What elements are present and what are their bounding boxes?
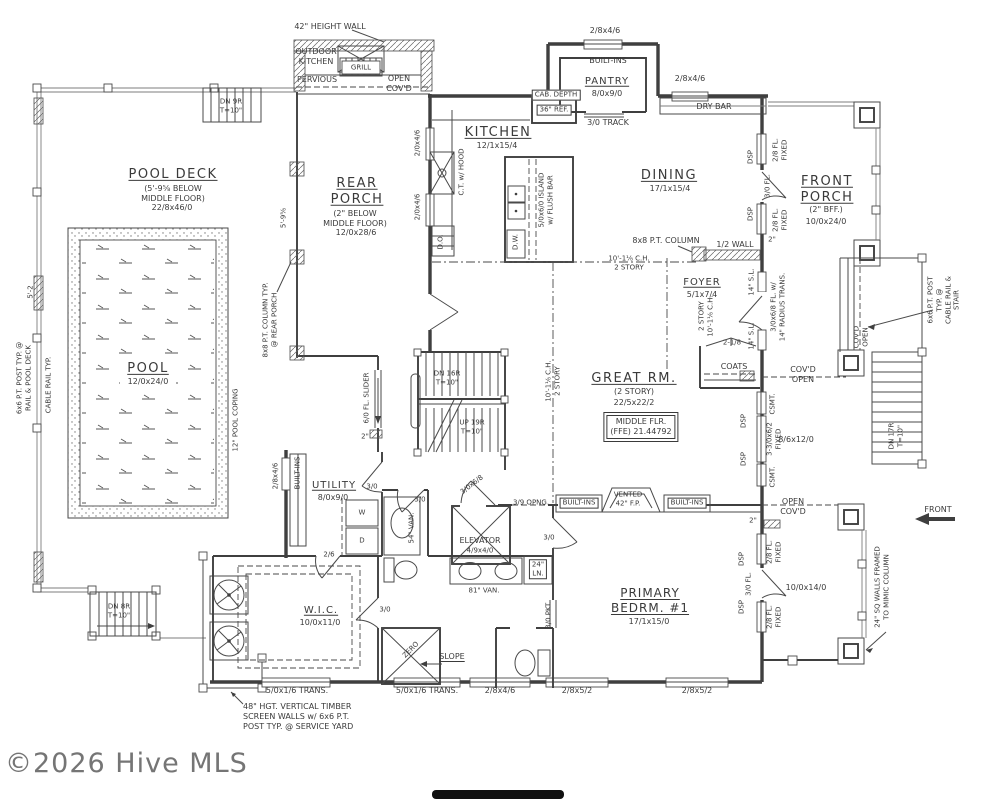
label-dn16r: DN 16R T=10" [434, 369, 461, 387]
label-do: D.O. [437, 234, 446, 249]
label-great-name: GREAT RM. [591, 371, 676, 387]
label-pkt30: 3/0 PKT. [545, 601, 554, 628]
toilet-icon [384, 558, 417, 582]
label-elev-name: ELEVATOR [459, 536, 500, 546]
cooktop-hood-icon [430, 152, 454, 194]
label-covd-open-stair: COV'D OPEN [852, 326, 870, 348]
label-dspd: DSP [740, 452, 749, 466]
label-dim-10014: 10/0x14/0 [786, 583, 827, 593]
label-builtins-l: BUILT-INS [560, 498, 599, 509]
label-dryer: D [359, 537, 364, 546]
label-post-pool: 6x6 P.T. POST TYP. @ RAIL & POOL DECK [15, 342, 33, 414]
label-kitchen-name: KITCHEN [465, 125, 532, 141]
label-slope: SLOPE [439, 652, 464, 662]
label-front-porch-sub: (2" BFF.) [809, 205, 843, 215]
label-pantry-win: 2/8x4/6 [590, 26, 620, 36]
label-door30-prim: 3/0 [543, 534, 554, 543]
label-dspf: DSP [738, 600, 747, 614]
label-csmt-a: CSMT. [769, 393, 778, 414]
label-front-porch-dims: 10/0x24/0 [806, 217, 847, 227]
label-ref36: 36" REF. [537, 105, 572, 116]
label-dry-bar: DRY BAR [696, 102, 731, 112]
label-front-porch-name: FRONT PORCH [801, 174, 854, 207]
floor-plan-linework [0, 0, 994, 799]
label-pantry-builtins: BUILT-INS [589, 56, 627, 66]
label-pt-column: 8x8 P.T. COLUMN [632, 236, 699, 246]
label-coats: COATS [721, 362, 748, 372]
label-up19r: UP 19R T=10" [459, 418, 484, 436]
label-util-win: 2/8x4/6 [272, 463, 281, 490]
label-mimic: 24" SQ WALLS FRAMED TO MIMIC COLUMN [873, 546, 891, 628]
label-elev-dims: 4/9x4/0 [467, 547, 494, 556]
label-kitchen-win-a: 2/0x4/6 [414, 130, 423, 157]
label-great-dims: 22/5x22/2 [614, 398, 655, 408]
label-pool-name: POOL [127, 361, 169, 377]
label-kitchen-dims: 12/1x15/4 [477, 141, 518, 151]
label-wic-name: W.I.C. [304, 605, 338, 618]
label-door30-wic: 3/0 [379, 606, 390, 615]
label-open-covd-right: OPEN COV'D [780, 497, 806, 517]
label-ffe: MIDDLE FLR. (FFE) 21.44792 [606, 415, 675, 439]
label-track30: 3/0 TRACK [587, 118, 629, 128]
label-foyer-name: FOYER [683, 277, 720, 290]
label-door26: 2/6 [323, 551, 334, 560]
label-win-2852a: 2/8x5/2 [562, 686, 592, 696]
label-primary-name: PRIMARY BEDRM. #1 [611, 586, 689, 616]
label-ln24: 24" LN. [529, 559, 547, 579]
label-ch-dining: 10'-1⅛ C.H. 2 STORY [608, 254, 649, 272]
toilet-icon [515, 650, 550, 676]
label-rear-porch-name: REAR PORCH [331, 176, 384, 209]
label-dspb: DSP [747, 207, 756, 221]
sink-icon [450, 558, 522, 584]
label-half-wall: 1/2 WALL [716, 240, 753, 250]
label-pool-deck-name: POOL DECK [128, 167, 217, 183]
hvac-fan-icon [210, 622, 248, 660]
label-pool-coping: 12" POOL COPING [232, 388, 241, 451]
label-wic-dims: 10/0x11/0 [300, 618, 341, 628]
label-vented: VENTED 42" F.P. [614, 490, 643, 508]
label-door30-util: 3/0 [366, 483, 377, 492]
label-foyer-story: 2 STORY 10'-1⅛ C.H. [697, 295, 715, 336]
floor-plan-page: DN 9R T=10" 42" HEIGHT WALL OUTDOOR KITC… [0, 0, 994, 799]
label-dining-dims: 17/1x15/4 [650, 184, 691, 194]
label-fixed28a: 2/8 FL. FIXED [771, 138, 789, 162]
label-washer: W [359, 509, 366, 518]
label-ct-hood: C.T. w/ HOOD [458, 149, 467, 196]
label-util-builtins: BUILT-INS [294, 457, 303, 490]
label-dim-5-2: 5'-2 [27, 285, 36, 298]
label-utility-name: UTILITY [312, 480, 356, 493]
label-front-door: 3/0x6/8 FL. w/ 14" RADIUS TRANS. [769, 273, 787, 342]
label-win-2846: 2/8x4/6 [485, 686, 515, 696]
label-timber: 48" HGT. VERTICAL TIMBER SCREEN WALLS w/… [243, 702, 353, 732]
label-utility-dims: 8/0x9/0 [318, 493, 348, 503]
label-opng39: 3/9 OPNG. [513, 499, 549, 508]
label-dw: D.W. [512, 234, 521, 250]
label-great-sub: (2 STORY) [614, 387, 654, 397]
label-fixed28d: 2/8 FL. FIXED [765, 605, 783, 629]
label-pantry-name: PANTRY [585, 76, 629, 89]
label-trans-a: 5/0x1/6 TRANS. [266, 686, 328, 696]
bottom-bar [432, 790, 564, 799]
label-post-stair: 6x6 P.T. POST TYP. @ CABLE RAIL & STAIR [927, 275, 962, 325]
label-kitchen-win-b: 2/0x4/6 [414, 194, 423, 221]
label-height-wall: 42" HEIGHT WALL [294, 22, 365, 32]
label-dim2-slider: 2" [361, 433, 369, 442]
label-door30-hall: 3/0 [414, 496, 425, 505]
label-dn9r: DN 9R T=10" [220, 97, 242, 115]
label-cable-rail: CABLE RAIL TYP. [45, 357, 54, 414]
label-dspa: DSP [747, 150, 756, 164]
label-ch-center: 10'-1⅛ C.H. 2 STORY [544, 360, 562, 401]
label-fl30a: 3/0 FL. [764, 174, 773, 198]
hvac-fan-icon [210, 576, 248, 614]
label-win-2852b: 2/8x5/2 [682, 686, 712, 696]
label-rear-porch-sub: (2" BELOW MIDDLE FLOOR) [323, 209, 387, 229]
label-primary-dims: 17/1x15/0 [629, 617, 670, 627]
label-column-rear: 8x8 P.T. COLUMN TYP. @ REAR PORCH [261, 282, 279, 357]
label-slider: 6/0 FL. SLIDER [363, 373, 372, 424]
label-csmt-b: CSMT. [769, 466, 778, 487]
exterior-stair [838, 254, 933, 468]
label-trans-b: 5/0x1/6 TRANS. [396, 686, 458, 696]
label-drybar-win: 2/8x4/6 [675, 74, 705, 84]
label-dspe: DSP [738, 552, 747, 566]
label-dn8r: DN 8R T=10" [108, 602, 130, 620]
label-dim2-right: 2" [749, 517, 757, 526]
label-island: 5/0x6/0 ISLAND w/ FLUSH BAR [537, 173, 555, 228]
label-dining-name: DINING [641, 168, 697, 184]
label-dim-8612: 8/6x12/0 [778, 435, 814, 445]
label-pool-deck-sub: (5'-9⅝ BELOW MIDDLE FLOOR) [141, 184, 205, 204]
label-cab-depth: CAB. DEPTH [532, 90, 581, 101]
label-pool-deck-dims: 22/8x46/0 [152, 203, 193, 213]
label-pantry-dims: 8/0x9/0 [592, 89, 622, 99]
label-builtins-r: BUILT-INS [668, 498, 707, 509]
label-fixed28c: 2/8 FL. FIXED [765, 540, 783, 564]
label-outdoor-kitchen: OUTDOOR KITCHEN [295, 47, 336, 67]
label-sl14a: 14" S.L. [748, 268, 757, 295]
label-van54: 54" VAN. [408, 513, 417, 544]
label-dn17r: DN 17R T=10" [887, 423, 905, 450]
label-fl30b: 3/0 FL. [745, 572, 754, 596]
label-dspc: DSP [740, 414, 749, 428]
label-fixed28b: 2/8 FL. FIXED [771, 208, 789, 232]
label-rear-porch-dims: 12/0x28/6 [336, 228, 377, 238]
label-front: FRONT [924, 505, 951, 515]
label-sl14b: 14" S.L. [748, 322, 757, 349]
label-pervious: PERVIOUS [297, 75, 337, 85]
label-covd-open-foyer: COV'D OPEN [790, 365, 816, 385]
label-dim-5-9: 5'-9⅝ [280, 208, 289, 228]
wic-room [213, 556, 378, 682]
watermark: ©2026 Hive MLS [5, 748, 248, 779]
label-grill: GRILL [351, 64, 371, 73]
label-van81: 81" VAN. [469, 587, 500, 596]
label-open-covd-top: OPEN COV'D [386, 74, 412, 94]
label-door218: 2-1/8 [723, 339, 741, 348]
label-pool-dims: 12/0x24/0 [128, 377, 169, 387]
label-dim2-porch: 2" [768, 236, 776, 245]
